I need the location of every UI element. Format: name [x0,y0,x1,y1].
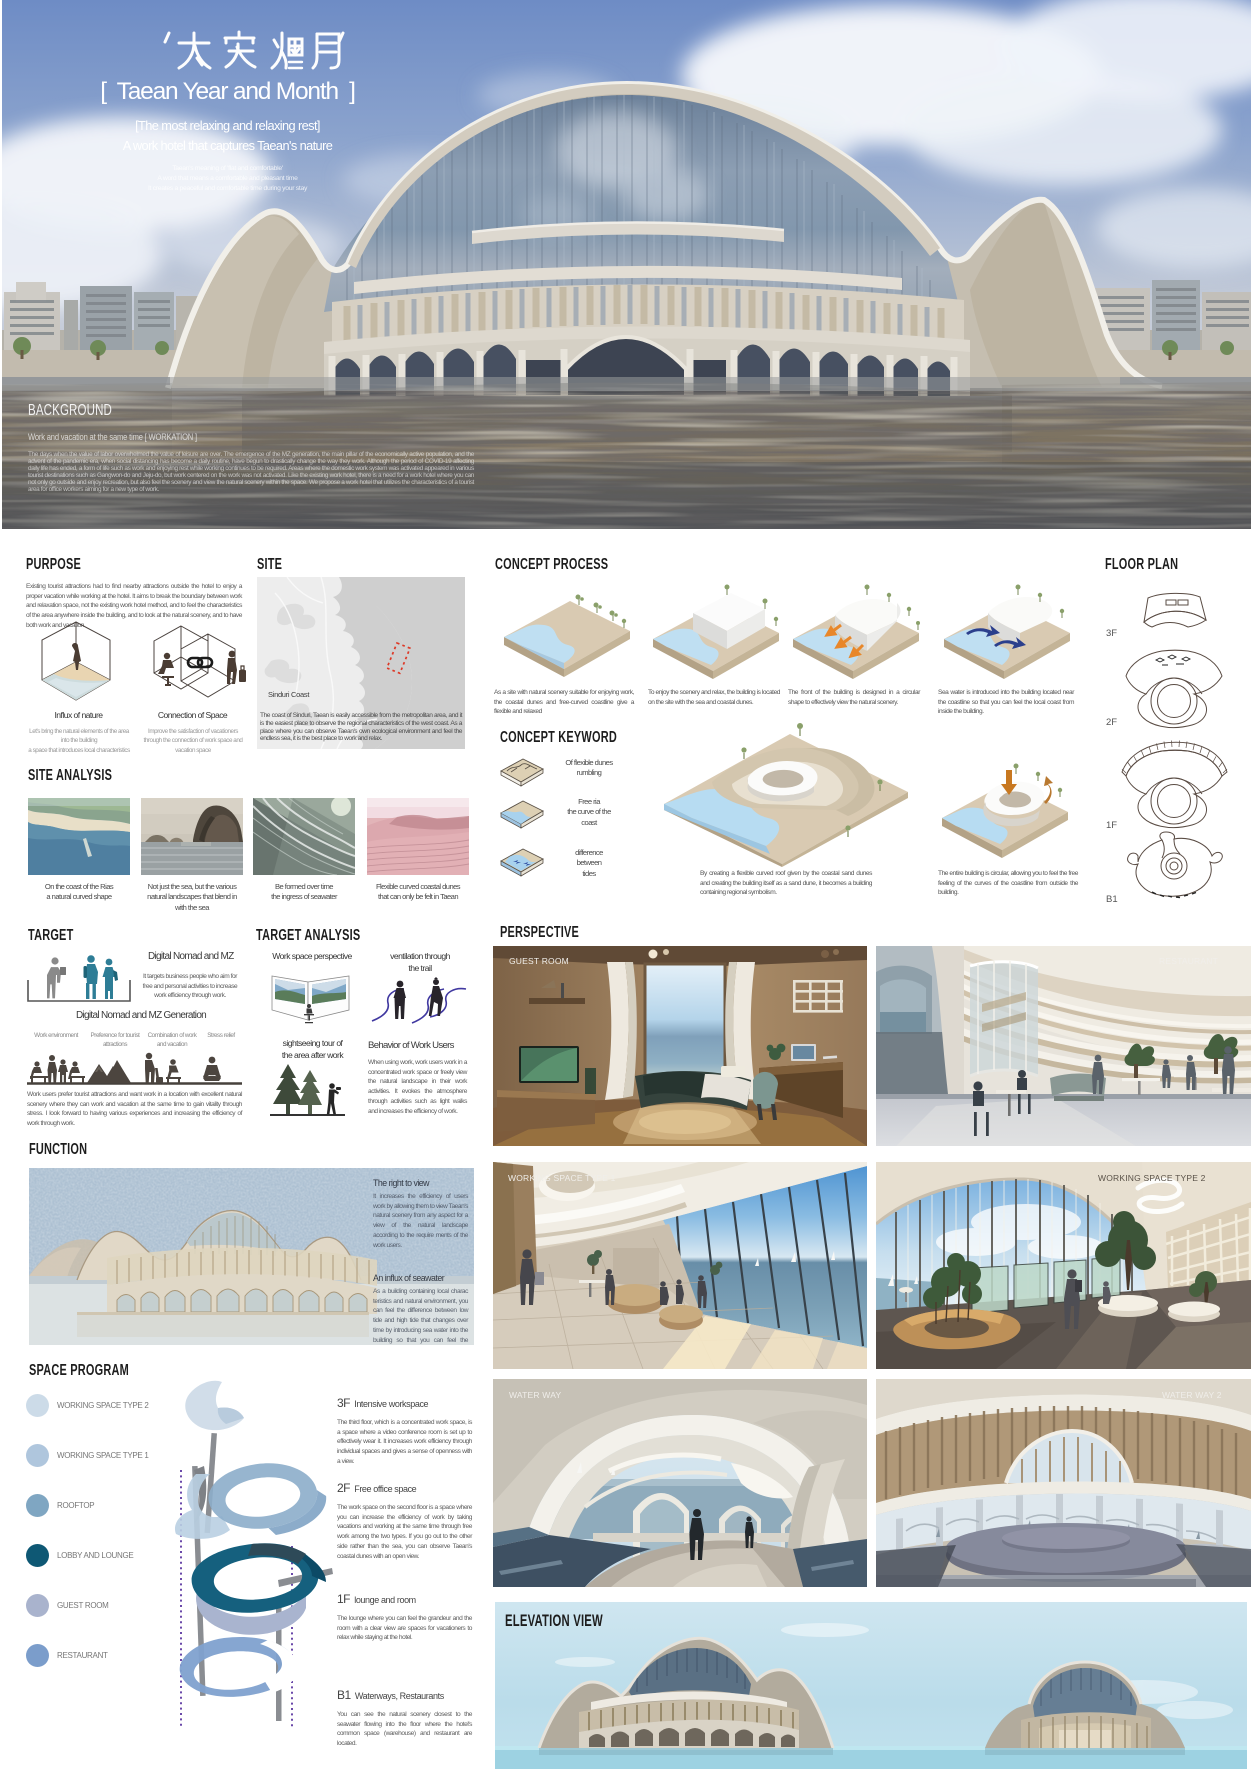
svg-text:B1: B1 [1106,894,1118,905]
svg-text:2F: 2F [1106,717,1117,728]
svg-text:1F: 1F [1106,820,1117,831]
svg-text:3F: 3F [1106,628,1117,639]
svg-text:Sinduri Coast: Sinduri Coast [268,690,310,699]
